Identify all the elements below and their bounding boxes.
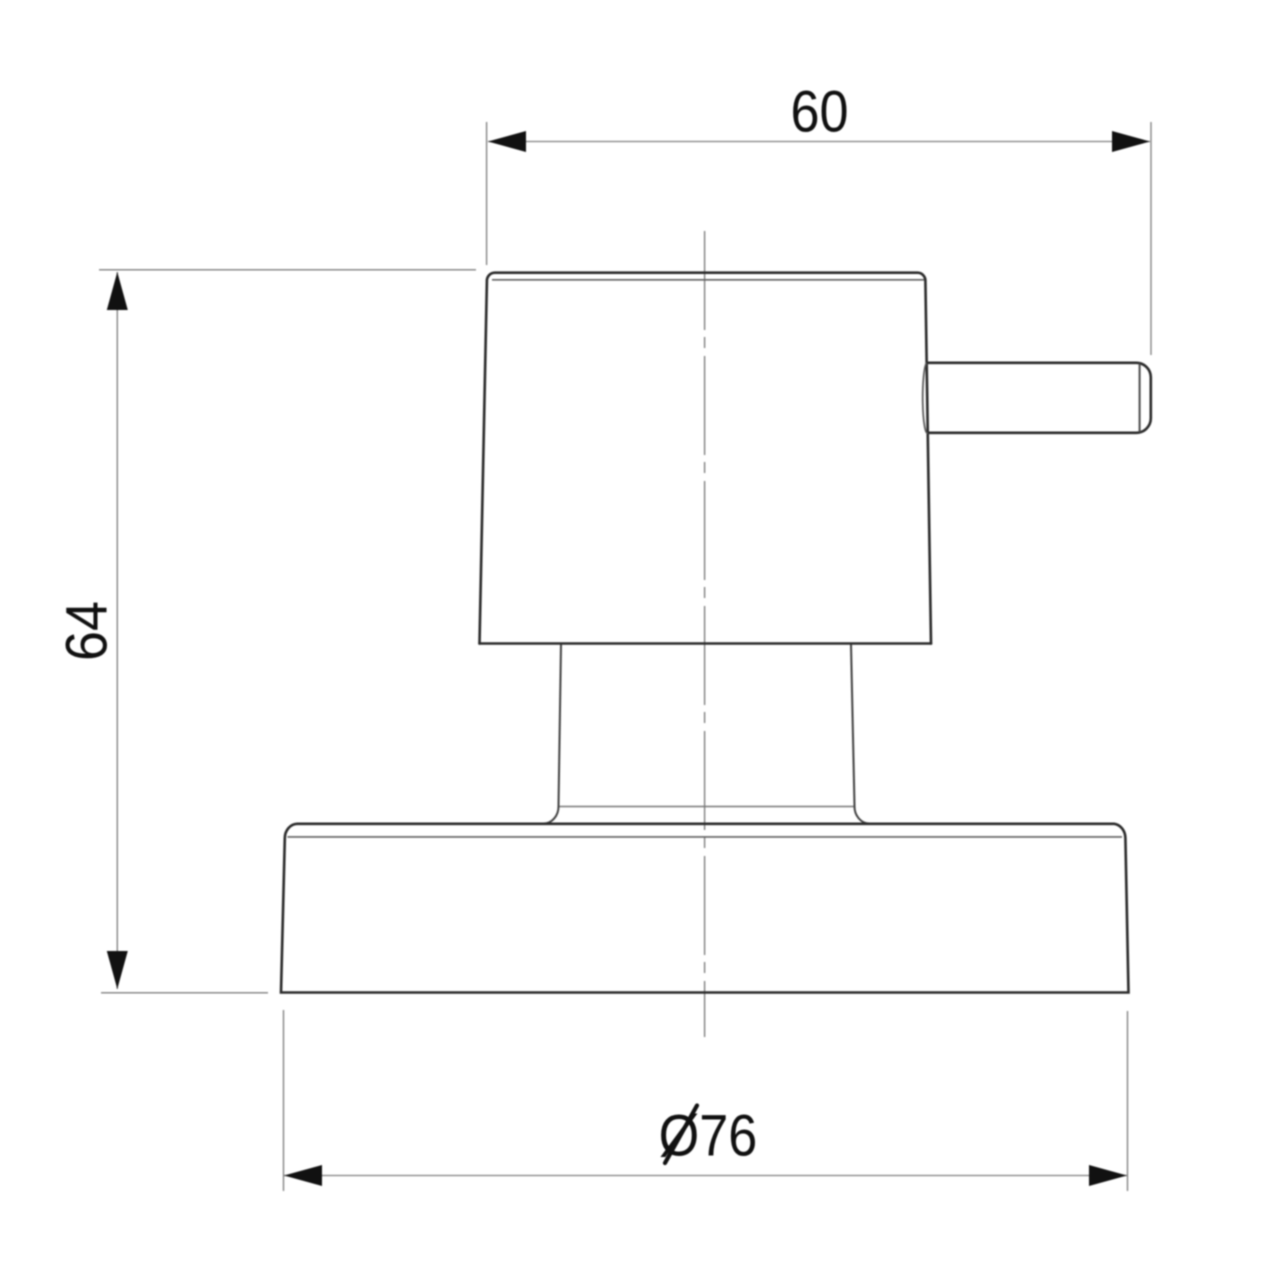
svg-text:64: 64 bbox=[53, 601, 118, 661]
svg-text:Ø76: Ø76 bbox=[659, 1103, 758, 1168]
svg-text:60: 60 bbox=[790, 79, 848, 144]
